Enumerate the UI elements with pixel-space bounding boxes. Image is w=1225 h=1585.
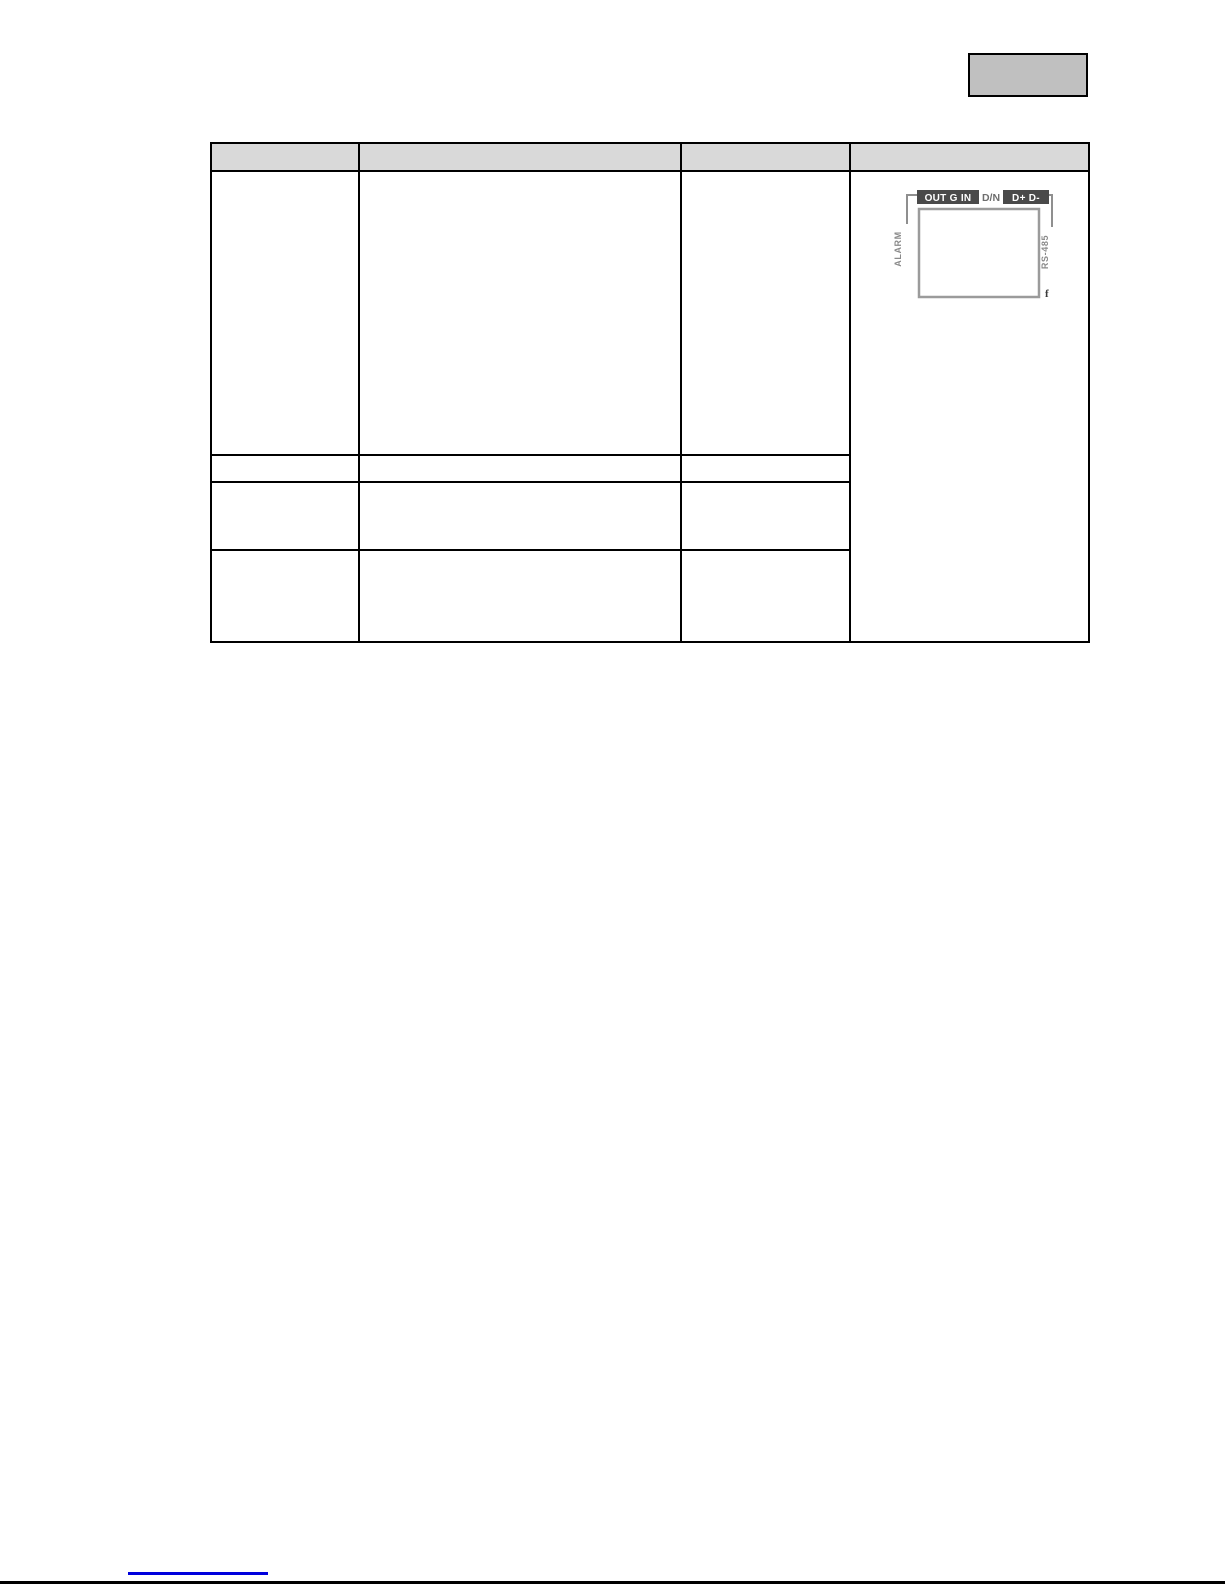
page-number-box [968,53,1088,97]
table-cell-diagram: OUT G IN D/N D+ D- ALARM RS-485 f [850,171,1089,642]
table-cell [211,171,359,455]
out-g-in-label: OUT G IN [925,193,972,204]
table-cell [211,482,359,550]
table-header-cell [359,143,681,171]
table-header-cell [211,143,359,171]
table-row: OUT G IN D/N D+ D- ALARM RS-485 f [211,171,1089,455]
d-plus-d-minus-label: D+ D- [1012,193,1040,204]
table-cell [359,550,681,642]
footer-link[interactable] [128,1572,268,1575]
table-cell [211,455,359,482]
rear-panel-diagram: OUT G IN D/N D+ D- ALARM RS-485 f [851,174,1086,314]
table-header-row [211,143,1089,171]
table-cell [681,171,850,455]
table-header-cell [850,143,1089,171]
table-cell [681,482,850,550]
table-cell [211,550,359,642]
footer-rule [0,1581,1225,1584]
table-header-cell [681,143,850,171]
ports-table: OUT G IN D/N D+ D- ALARM RS-485 f [210,142,1090,643]
table-cell [359,171,681,455]
table-cell [681,550,850,642]
table-cell [359,482,681,550]
alarm-label: ALARM [893,231,903,267]
table-cell [681,455,850,482]
rs-485-label: RS-485 [1040,235,1050,269]
day-night-label: D/N [982,192,1000,204]
table-cell [359,455,681,482]
terminal-block-outline [919,209,1039,297]
document-page: OUT G IN D/N D+ D- ALARM RS-485 f [0,0,1225,1585]
corner-mark: f [1045,288,1049,300]
